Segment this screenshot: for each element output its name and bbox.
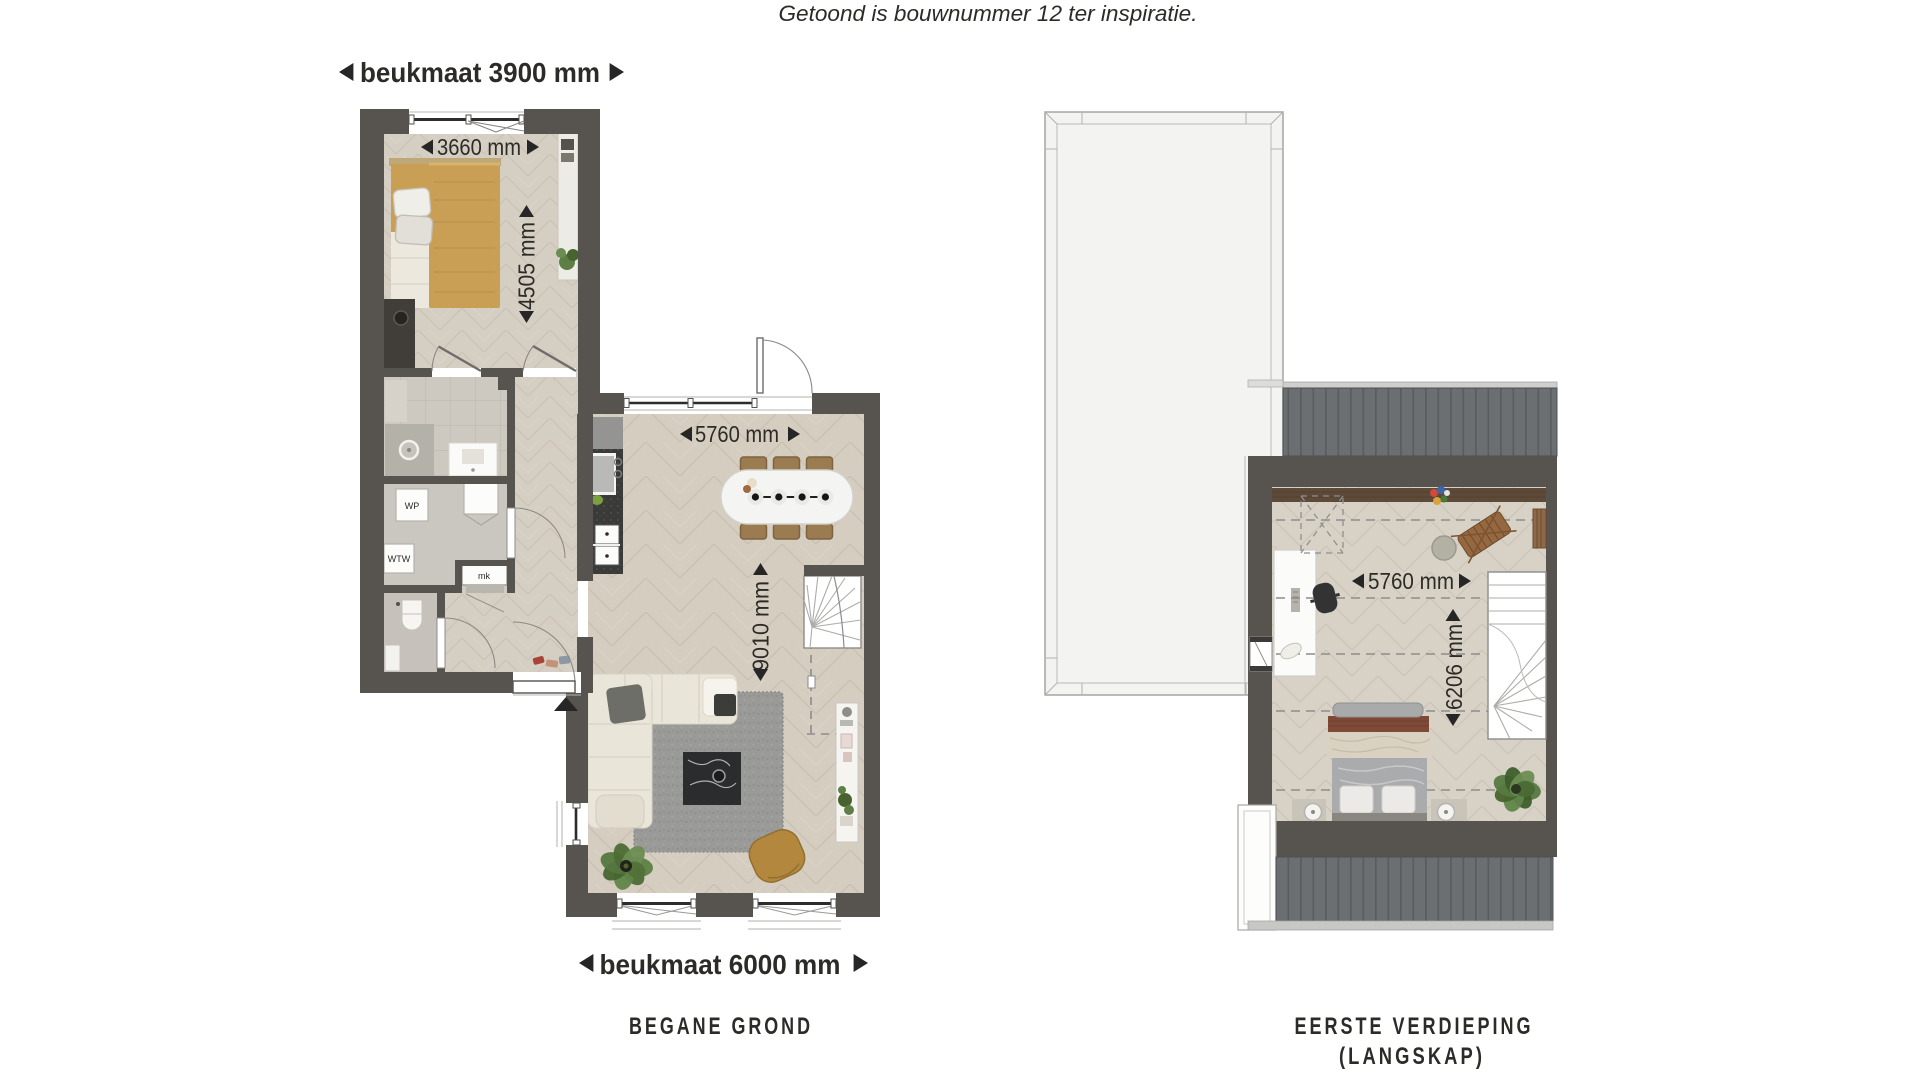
svg-text:5760 mm: 5760 mm — [695, 421, 779, 447]
svg-text:WTW: WTW — [388, 554, 411, 564]
svg-text:5760 mm: 5760 mm — [1368, 568, 1454, 594]
svg-text:Getoond is bouwnummer 12 ter i: Getoond is bouwnummer 12 ter inspiratie. — [779, 1, 1198, 26]
svg-text:WP: WP — [405, 501, 420, 511]
svg-text:6206 mm: 6206 mm — [1441, 624, 1467, 710]
svg-text:4505 mm: 4505 mm — [514, 222, 540, 310]
svg-text:beukmaat 3900 mm: beukmaat 3900 mm — [360, 57, 600, 88]
svg-text:mk: mk — [478, 571, 490, 581]
svg-text:3660 mm: 3660 mm — [437, 134, 521, 160]
svg-text:9010 mm: 9010 mm — [748, 581, 774, 671]
svg-text:BEGANE GROND: BEGANE GROND — [629, 1013, 813, 1040]
svg-text:(LANGSKAP): (LANGSKAP) — [1339, 1043, 1485, 1070]
svg-text:EERSTE VERDIEPING: EERSTE VERDIEPING — [1295, 1013, 1534, 1040]
svg-text:beukmaat 6000 mm: beukmaat 6000 mm — [600, 949, 841, 980]
